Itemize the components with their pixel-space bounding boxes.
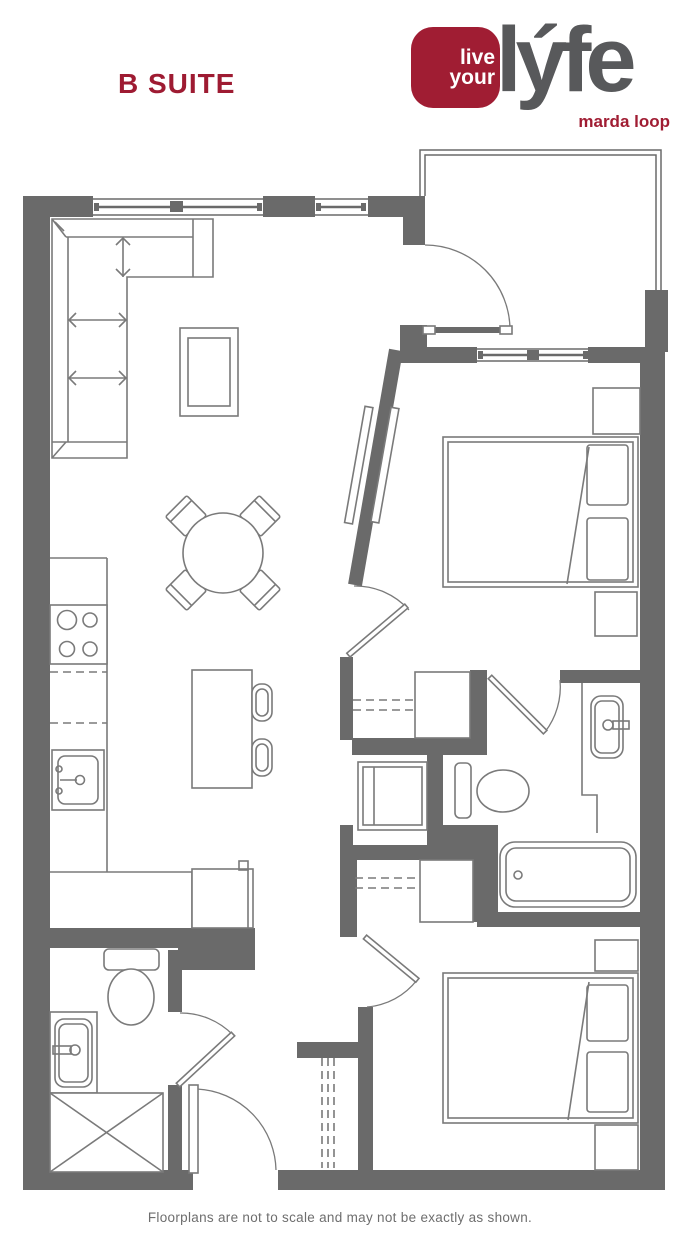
bathroom-2 xyxy=(50,949,235,1172)
bed-2 xyxy=(443,973,638,1123)
closet-shelf xyxy=(415,672,470,738)
balcony xyxy=(420,150,661,297)
bar-stool xyxy=(252,684,272,721)
nightstand xyxy=(595,1125,638,1170)
bathroom-1-door xyxy=(488,675,560,734)
bedroom-1-door xyxy=(347,586,409,657)
toilet xyxy=(104,949,159,1025)
dining-window xyxy=(315,199,368,215)
logo-badge-line1: live xyxy=(460,48,495,68)
entry-door xyxy=(189,1085,276,1173)
logo-badge: live your xyxy=(411,27,500,108)
bathtub xyxy=(500,842,636,907)
brand-logo: live your lýfe marda loop xyxy=(408,8,676,138)
nightstand xyxy=(593,388,640,434)
stove-burners xyxy=(50,605,107,664)
vanity-sink xyxy=(50,1012,97,1093)
bedroom-1-window xyxy=(477,349,588,361)
logo-badge-line2: your xyxy=(449,68,495,88)
nightstand xyxy=(595,940,638,971)
logo-wordmark: lýfe xyxy=(496,14,631,106)
closet-shelf xyxy=(420,860,473,922)
disclaimer-text: Floorplans are not to scale and may not … xyxy=(0,1210,680,1225)
floorplan-drawing xyxy=(0,0,680,1242)
pillow xyxy=(587,518,628,580)
kitchen-sink xyxy=(52,750,104,810)
pillow xyxy=(587,445,628,505)
coat-closet xyxy=(322,1058,334,1168)
kitchen xyxy=(50,558,272,928)
shower xyxy=(50,1093,163,1172)
living-room-window xyxy=(93,199,263,215)
nightstand xyxy=(595,592,637,636)
toilet xyxy=(455,763,529,818)
laundry-closet xyxy=(358,762,427,830)
bed-1 xyxy=(443,437,638,587)
hall-cabinet xyxy=(192,861,253,928)
coffee-table xyxy=(180,328,238,416)
vanity-sink xyxy=(582,683,629,833)
logo-tagline: marda loop xyxy=(488,112,670,132)
bathroom-2-door xyxy=(176,1013,234,1087)
pillow xyxy=(587,1052,628,1112)
round-dining-table xyxy=(183,513,263,593)
bedroom-1 xyxy=(345,388,640,830)
suite-title: B SUITE xyxy=(118,68,235,100)
bedroom-2-closet xyxy=(355,860,473,922)
bedroom-1-closet xyxy=(353,672,470,738)
bedroom-2-door xyxy=(363,935,419,1007)
living-room xyxy=(52,219,238,458)
bar-stool xyxy=(252,739,272,776)
dining-area xyxy=(165,495,280,610)
floorplan-page: B SUITE live your lýfe marda loop Floorp… xyxy=(0,0,680,1242)
washer-dryer xyxy=(358,762,427,830)
balcony-door xyxy=(423,245,512,334)
pillow xyxy=(587,985,628,1041)
entry xyxy=(189,1058,334,1173)
kitchen-island xyxy=(192,670,272,788)
